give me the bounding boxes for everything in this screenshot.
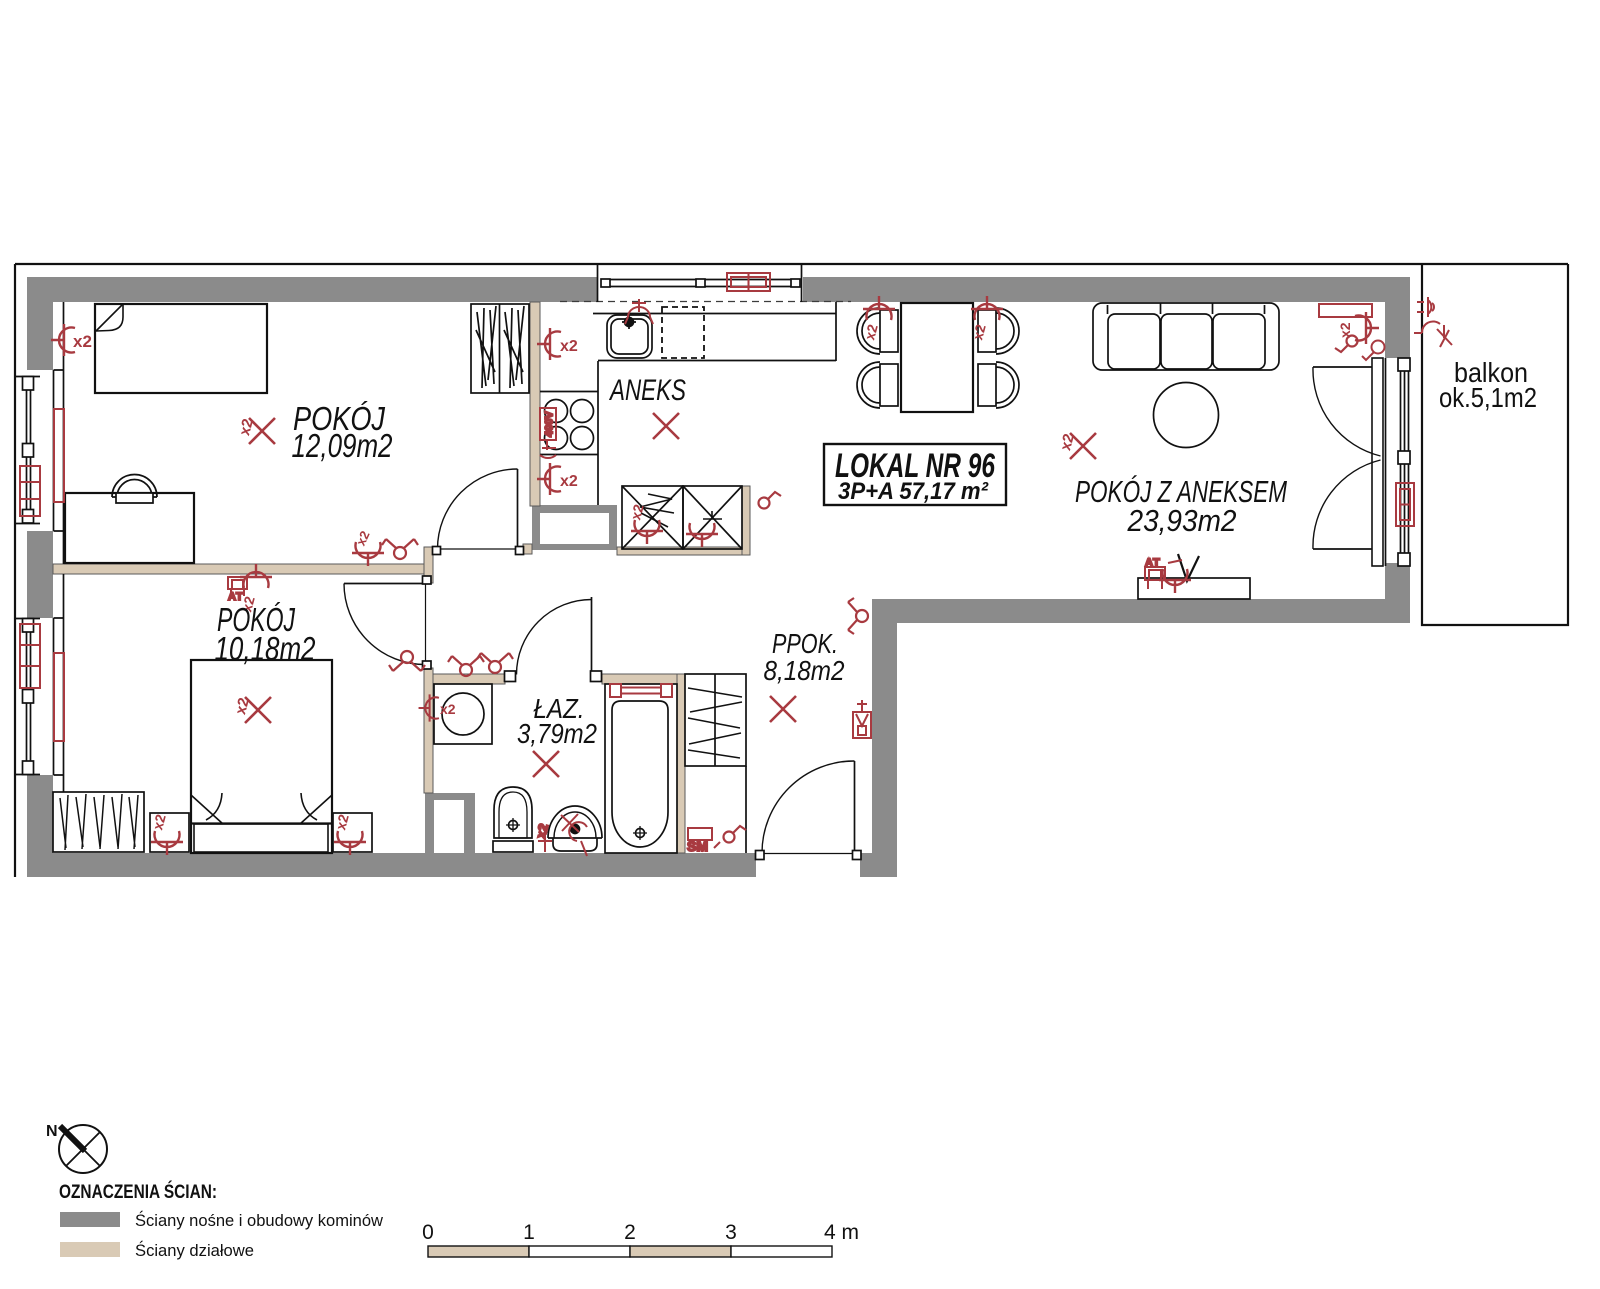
svg-text:0: 0 xyxy=(422,1221,434,1244)
svg-text:3P+A 57,17 m²: 3P+A 57,17 m² xyxy=(838,478,989,505)
svg-text:x2: x2 xyxy=(560,338,578,355)
svg-text:OZNACZENIA ŚCIAN:: OZNACZENIA ŚCIAN: xyxy=(59,1181,217,1203)
svg-text:3: 3 xyxy=(725,1221,737,1244)
svg-text:N: N xyxy=(46,1123,58,1140)
svg-text:ANEKS: ANEKS xyxy=(609,374,686,407)
svg-text:2: 2 xyxy=(624,1221,636,1244)
svg-text:12,09m2: 12,09m2 xyxy=(292,427,393,464)
svg-text:x2: x2 xyxy=(440,701,456,717)
svg-text:23,93m2: 23,93m2 xyxy=(1127,503,1237,538)
svg-text:Ściany nośne i obudowy kominów: Ściany nośne i obudowy kominów xyxy=(135,1211,384,1230)
svg-text:10,18m2: 10,18m2 xyxy=(215,630,316,667)
svg-text:Ściany działowe: Ściany działowe xyxy=(135,1241,254,1260)
svg-text:x2: x2 xyxy=(560,473,578,490)
svg-text:400V: 400V xyxy=(544,411,556,437)
svg-text:x2: x2 xyxy=(73,332,92,351)
svg-text:3,79m2: 3,79m2 xyxy=(517,718,597,749)
svg-text:SM: SM xyxy=(687,838,708,854)
svg-text:8,18m2: 8,18m2 xyxy=(764,655,845,686)
svg-text:ok.5,1m2: ok.5,1m2 xyxy=(1439,382,1537,413)
svg-text:1: 1 xyxy=(523,1221,535,1244)
svg-text:4 m: 4 m xyxy=(824,1221,859,1244)
svg-text:AТ: AТ xyxy=(1145,557,1160,569)
